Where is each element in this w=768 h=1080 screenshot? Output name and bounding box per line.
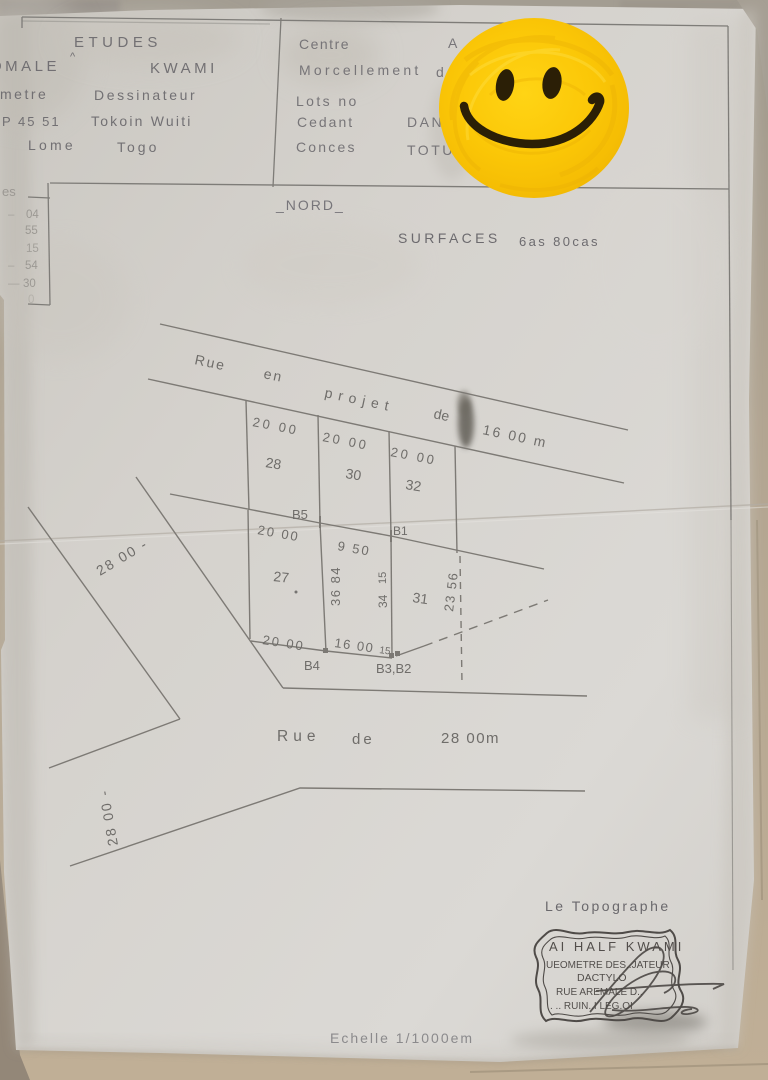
svg-text:15: 15 (26, 243, 39, 255)
svg-text:27: 27 (273, 568, 290, 586)
svg-text:Conces: Conces (296, 139, 357, 155)
svg-text:Lome: Lome (28, 137, 76, 153)
svg-text:OMALE: OMALE (0, 58, 60, 75)
svg-text:ETUDES: ETUDES (74, 34, 162, 51)
svg-text:B5: B5 (292, 507, 308, 522)
svg-text:32: 32 (405, 476, 423, 494)
svg-text:Togo: Togo (117, 139, 159, 155)
svg-text:Cedant: Cedant (297, 114, 354, 130)
svg-text:metre: metre (0, 86, 48, 102)
svg-text:30: 30 (23, 278, 36, 290)
svg-text:28: 28 (265, 454, 283, 472)
svg-text:30: 30 (345, 465, 363, 483)
svg-text:Dessinateur: Dessinateur (94, 87, 197, 103)
svg-text:de: de (352, 731, 375, 748)
svg-text:KWAMI: KWAMI (150, 60, 218, 77)
svg-text:A: A (448, 35, 458, 51)
svg-text:es: es (2, 184, 16, 199)
svg-text:Centre: Centre (299, 36, 350, 52)
svg-text:28 00m: 28 00m (441, 730, 500, 747)
svg-text:Morcellement: Morcellement (299, 62, 421, 78)
svg-text:36 84: 36 84 (328, 566, 343, 606)
svg-text:B3,B2: B3,B2 (376, 661, 411, 676)
svg-text:AI HALF KWAMI: AI HALF KWAMI (549, 939, 684, 954)
svg-text:d: d (436, 64, 444, 80)
svg-text:Rue: Rue (277, 728, 320, 745)
svg-text:Echelle 1/1000em: Echelle 1/1000em (330, 1030, 474, 1046)
svg-text:Lots no: Lots no (296, 93, 359, 109)
svg-text:P 45 51: P 45 51 (2, 114, 61, 129)
svg-text:15: 15 (377, 572, 389, 584)
svg-text:DAN: DAN (407, 114, 444, 130)
svg-text:UEOMETRE DES..JATEUR: UEOMETRE DES..JATEUR (546, 960, 670, 971)
svg-text:31: 31 (412, 589, 430, 607)
svg-text:—: — (8, 278, 20, 290)
svg-text:B1: B1 (393, 524, 408, 538)
svg-text:15: 15 (379, 645, 392, 658)
svg-text:_NORD_: _NORD_ (275, 197, 345, 213)
svg-text:Le Topographe: Le Topographe (545, 898, 671, 914)
svg-text:6as 80cas: 6as 80cas (519, 234, 600, 249)
svg-text:54: 54 (25, 260, 38, 272)
svg-text:55: 55 (25, 225, 38, 237)
svg-text:34: 34 (376, 594, 390, 608)
svg-text:B4: B4 (304, 658, 320, 673)
svg-text:–: – (8, 209, 15, 221)
svg-text:0: 0 (28, 294, 34, 306)
svg-text:Tokoin Wuiti: Tokoin Wuiti (91, 113, 193, 129)
svg-text:–: – (8, 260, 15, 272)
svg-text:^: ^ (70, 51, 76, 63)
svg-text:SURFACES: SURFACES (398, 230, 501, 246)
svg-text:04: 04 (26, 209, 39, 221)
